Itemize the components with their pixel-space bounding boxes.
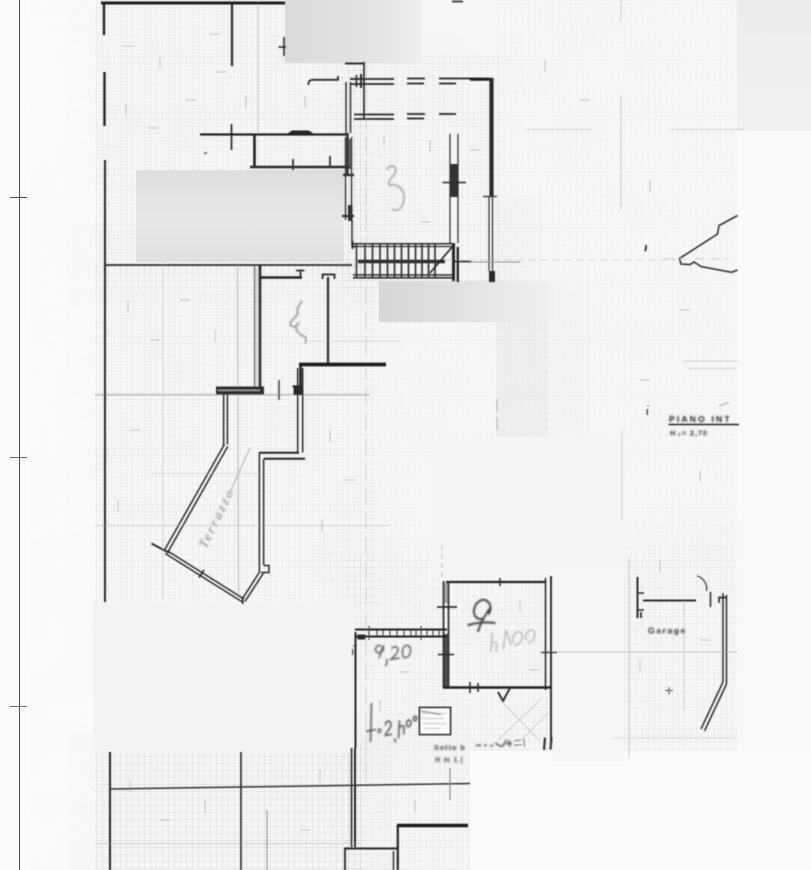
svg-text:H m 1.(: H m 1.( <box>435 757 464 764</box>
svg-text:PIANO INT: PIANO INT <box>669 414 732 424</box>
svg-text:Garage: Garage <box>648 626 687 636</box>
svg-text:H ₀= 2,70: H ₀= 2,70 <box>670 429 708 438</box>
svg-text:Sotto b: Sotto b <box>434 745 466 752</box>
